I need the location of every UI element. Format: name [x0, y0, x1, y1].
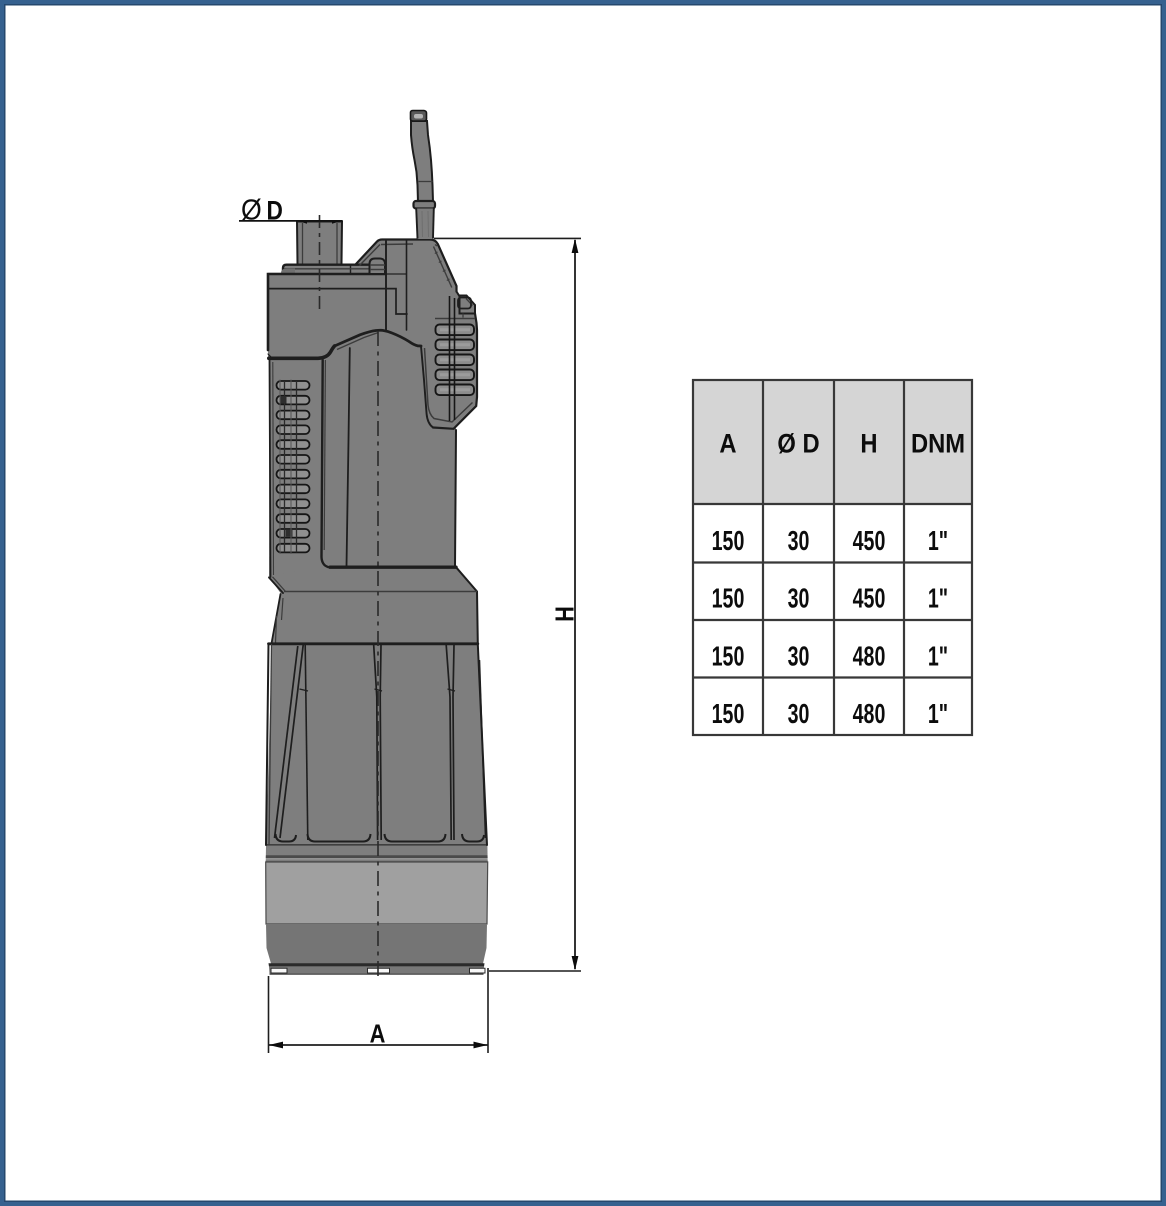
- svg-text:H: H: [860, 429, 877, 459]
- svg-text:Ø D: Ø D: [777, 429, 819, 459]
- svg-text:1": 1": [928, 641, 948, 672]
- svg-text:150: 150: [712, 699, 745, 730]
- svg-text:150: 150: [712, 641, 745, 672]
- svg-text:30: 30: [788, 699, 810, 730]
- svg-text:150: 150: [712, 526, 745, 557]
- svg-text:DNM: DNM: [911, 429, 965, 459]
- svg-text:30: 30: [788, 583, 810, 614]
- svg-text:30: 30: [788, 526, 810, 557]
- svg-text:A: A: [370, 1020, 386, 1049]
- svg-text:1": 1": [928, 699, 948, 730]
- svg-text:450: 450: [853, 526, 886, 557]
- svg-text:H: H: [551, 606, 580, 622]
- svg-text:480: 480: [853, 699, 886, 730]
- svg-text:1": 1": [928, 583, 948, 614]
- svg-text:1": 1": [928, 526, 948, 557]
- svg-text:480: 480: [853, 641, 886, 672]
- svg-text:30: 30: [788, 641, 810, 672]
- svg-text:A: A: [719, 429, 736, 459]
- svg-text:150: 150: [712, 583, 745, 614]
- svg-text:450: 450: [853, 583, 886, 614]
